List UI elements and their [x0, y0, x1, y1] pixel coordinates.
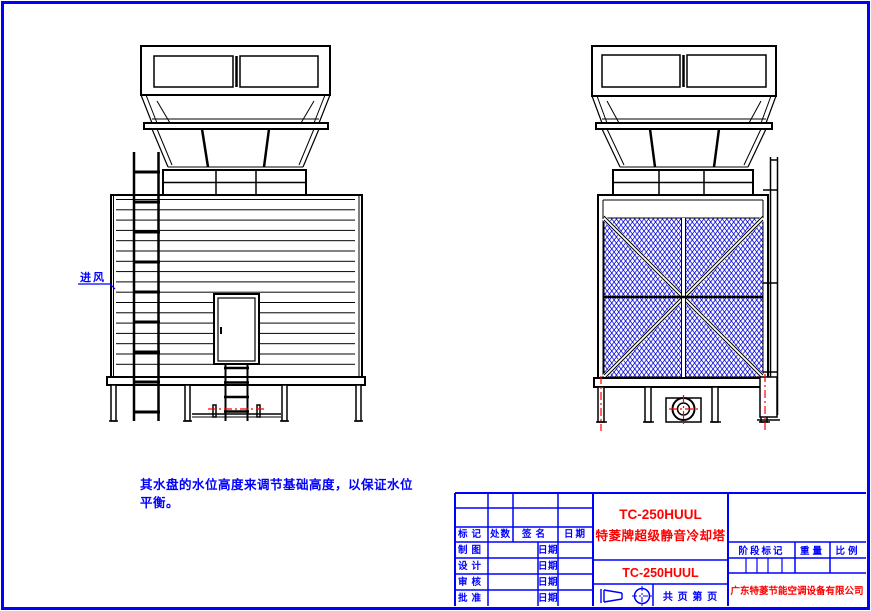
first-angle-projection-icon — [601, 589, 622, 603]
title-block: 标记 处数 签名 日期 制图 日期 设计 日期 审核 日期 批准 日期 TC-2… — [455, 493, 866, 606]
scale-header: 比例 — [835, 545, 860, 557]
role-approver: 批准 — [458, 592, 485, 604]
drawing-note: 其水盘的水位高度来调节基础高度，以保证水位 平衡。 — [140, 477, 413, 510]
page-count-label: 共 页 第 页 — [663, 590, 718, 603]
role-designer: 设计 — [458, 560, 485, 572]
fan-bell-transition — [152, 129, 319, 167]
air-inlet-callout: 进风 — [78, 270, 115, 289]
note-line-1: 其水盘的水位高度来调节基础高度，以保证水位 — [140, 477, 413, 492]
header-date: 日期 — [564, 528, 587, 540]
side-ladder — [133, 152, 160, 421]
header-signature: 签名 — [521, 528, 549, 540]
mesh-screen-panel — [598, 195, 768, 379]
header-count: 处数 — [489, 528, 511, 540]
lower-ladder — [224, 364, 249, 421]
company-name: 广东特菱节能空调设备有限公司 — [730, 585, 863, 597]
fan-deck-frame-front — [613, 170, 753, 195]
weight-header: 重量 — [800, 545, 825, 557]
left-view-side-elevation — [107, 46, 365, 421]
fan-deck-frame — [163, 170, 306, 195]
drawing-number: TC-250HUUL — [622, 566, 699, 580]
date-label-checker: 日期 — [538, 576, 558, 588]
date-label-drafter: 日期 — [538, 544, 558, 556]
fan-cowl — [141, 46, 330, 129]
role-drafter: 制图 — [458, 544, 485, 556]
fan-bell-transition-front — [602, 129, 766, 167]
note-line-2: 平衡。 — [140, 495, 179, 510]
date-label-designer: 日期 — [538, 560, 558, 572]
air-inlet-label: 进风 — [80, 270, 106, 284]
product-name-title: 特菱牌超级静音冷却塔 — [595, 528, 725, 543]
date-label-approver: 日期 — [538, 592, 558, 604]
product-model-title: TC-250HUUL — [619, 507, 702, 522]
stage-mark-header: 阶段标记 — [738, 545, 784, 557]
fan-cowl-front — [592, 46, 776, 129]
cad-canvas: 进风 其水盘的水位高度来调节基础高度，以保证水位 平衡。 — [0, 0, 871, 611]
header-mark: 标记 — [457, 528, 485, 540]
access-door — [214, 294, 259, 364]
cad-drawing-page: 进风 其水盘的水位高度来调节基础高度，以保证水位 平衡。 — [0, 0, 871, 611]
datum-target-icon — [632, 586, 652, 606]
right-view-front-elevation — [592, 46, 780, 433]
revision-table-header: 标记 处数 签名 日期 — [457, 528, 587, 540]
role-checker: 审核 — [458, 576, 485, 588]
